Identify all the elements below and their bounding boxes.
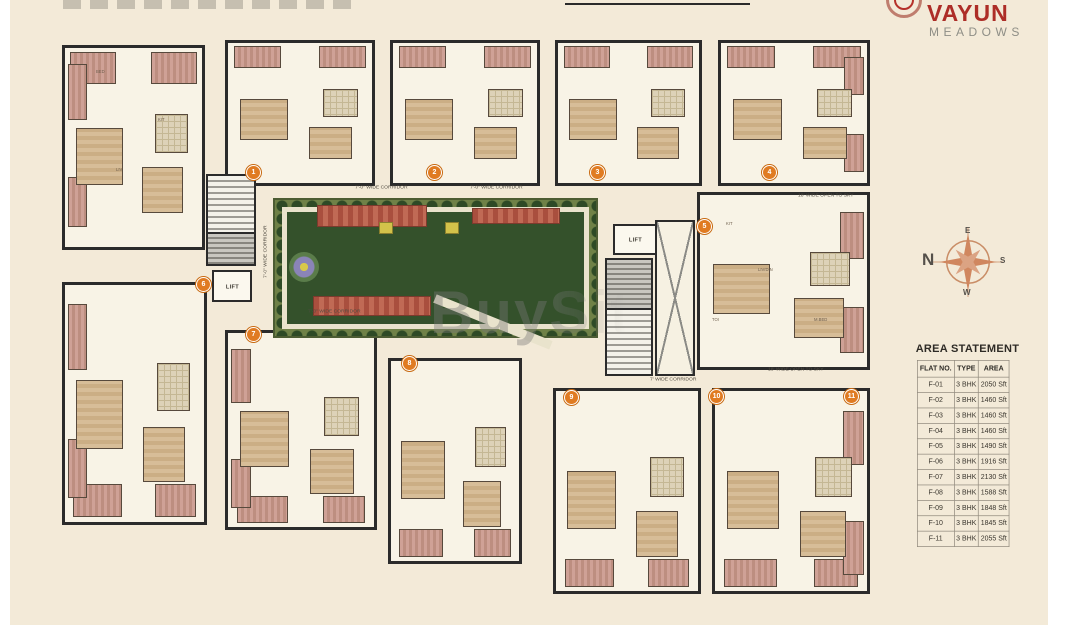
area-statement-title: AREA STATEMENT xyxy=(905,343,1030,355)
area-cell: F-04 xyxy=(917,423,954,438)
area-cell: 1490 Sft xyxy=(978,439,1009,454)
room-label-mbed-r: M.BED xyxy=(814,318,827,322)
unit-block-bottom-1 xyxy=(225,330,377,530)
area-cell: F-07 xyxy=(917,470,954,485)
cut-wall-line xyxy=(565,3,750,5)
balcony-strip xyxy=(155,484,195,517)
room-patch xyxy=(637,127,679,159)
unit-badge: 8 xyxy=(402,356,417,371)
room-patch xyxy=(76,128,123,186)
area-cell: 1848 Sft xyxy=(978,500,1009,515)
room-patch xyxy=(488,89,523,117)
area-cell: 3 BHK xyxy=(954,454,978,469)
staircase-left-landing xyxy=(206,232,256,266)
room-patch xyxy=(405,99,454,140)
staircase-left xyxy=(206,174,256,234)
compass-west-label: W xyxy=(963,288,971,297)
garden-feature-yellow-1 xyxy=(379,222,393,234)
balcony-strip xyxy=(724,559,777,587)
room-patch xyxy=(142,167,183,213)
lift-center: LIFT xyxy=(613,224,657,255)
area-cell: 1460 Sft xyxy=(978,408,1009,423)
garden-patio-top xyxy=(317,205,427,227)
balcony-strip xyxy=(323,496,365,523)
room-label-bed-a: BED xyxy=(96,70,105,74)
area-cell: 3 BHK xyxy=(954,531,978,546)
room-patch xyxy=(651,89,685,117)
room-label-liv-r: LIV/DIN xyxy=(758,268,773,272)
room-patch xyxy=(310,449,354,494)
room-patch xyxy=(157,363,190,410)
area-cell: F-06 xyxy=(917,454,954,469)
room-patch xyxy=(636,511,679,557)
balcony-strip xyxy=(564,46,611,68)
open-to-sky-label-1: 18' WIDE OPEN TO SKY xyxy=(798,192,854,198)
area-cell: F-08 xyxy=(917,485,954,500)
unit-block-bottom-3 xyxy=(553,388,701,594)
area-row: F-013 BHK2050 Sft xyxy=(917,377,1009,392)
room-label-kit-r: KIT xyxy=(726,222,733,226)
corridor-label-3: 7'-0" WIDE CORRIDOR xyxy=(308,308,361,314)
unit-block-bottom-2 xyxy=(388,358,522,564)
room-patch xyxy=(474,127,517,159)
unit-badge: 5 xyxy=(697,219,712,234)
room-patch xyxy=(817,89,852,117)
corridor-label-2: 7'-0" WIDE CORRIDOR xyxy=(470,184,523,190)
area-cell: F-01 xyxy=(917,377,954,392)
room-patch xyxy=(309,127,352,159)
area-cell: 1460 Sft xyxy=(978,423,1009,438)
area-cell: F-05 xyxy=(917,439,954,454)
area-statement-table: FLAT NO.TYPEAREA F-013 BHK2050 SftF-023 … xyxy=(917,360,1009,547)
room-patch xyxy=(810,252,850,286)
area-cell: 3 BHK xyxy=(954,485,978,500)
unit-block-top-right xyxy=(718,40,870,186)
unit-block-top-2 xyxy=(225,40,375,186)
balcony-strip xyxy=(231,349,251,403)
room-patch xyxy=(76,380,123,449)
corridor-label-4: 7' WIDE CORRIDOR xyxy=(650,376,696,382)
area-cell: 1588 Sft xyxy=(978,485,1009,500)
area-col-header: AREA xyxy=(978,360,1009,377)
balcony-strip xyxy=(399,529,444,557)
balcony-strip xyxy=(474,529,511,557)
room-patch xyxy=(727,471,779,529)
garden-feature-yellow-2 xyxy=(445,222,459,234)
room-patch xyxy=(815,457,851,497)
unit-badge: 1 xyxy=(246,165,261,180)
area-cell: F-11 xyxy=(917,531,954,546)
area-cell: F-09 xyxy=(917,500,954,515)
balcony-strip xyxy=(840,307,863,353)
area-cell: F-02 xyxy=(917,393,954,408)
room-label-toi-r: TOI xyxy=(712,318,719,322)
area-cell: 3 BHK xyxy=(954,470,978,485)
room-patch xyxy=(463,481,501,527)
unit-badge: 11 xyxy=(844,389,859,404)
room-patch xyxy=(800,511,846,557)
unit-block-top-3 xyxy=(390,40,540,186)
area-cell: 2130 Sft xyxy=(978,470,1009,485)
unit-badge: 10 xyxy=(709,389,724,404)
area-cell: 1916 Sft xyxy=(978,454,1009,469)
open-to-sky-label-2: 18' WIDE OPEN TO SKY xyxy=(768,366,824,372)
area-cell: 3 BHK xyxy=(954,408,978,423)
room-patch xyxy=(650,457,684,497)
balcony-strip xyxy=(565,559,615,587)
balcony-strip xyxy=(234,46,282,68)
room-patch xyxy=(240,411,290,467)
balcony-strip xyxy=(648,559,689,587)
corridor-label-1: 7'-0" WIDE CORRIDOR xyxy=(355,184,408,190)
area-col-header: FLAT NO. xyxy=(917,360,954,377)
watermark-text: BuySit xyxy=(430,278,632,347)
room-patch xyxy=(567,471,615,529)
garden-patio-right xyxy=(472,208,560,224)
area-cell: F-10 xyxy=(917,516,954,531)
corridor-label-vertical: 7'-0" WIDE CORRIDOR xyxy=(262,225,268,278)
area-cell: 1845 Sft xyxy=(978,516,1009,531)
compass-east-label: E xyxy=(965,226,970,235)
unit-block-left-lower xyxy=(62,282,207,525)
balcony-strip xyxy=(151,52,196,84)
room-patch xyxy=(803,127,847,159)
area-cell: F-03 xyxy=(917,408,954,423)
room-patch xyxy=(733,99,783,140)
unit-badge: 4 xyxy=(762,165,777,180)
area-row: F-093 BHK1848 Sft xyxy=(917,500,1009,515)
area-cell: 1460 Sft xyxy=(978,393,1009,408)
area-row: F-113 BHK2055 Sft xyxy=(917,531,1009,546)
room-patch xyxy=(323,89,358,117)
room-patch xyxy=(240,99,289,140)
room-patch xyxy=(475,427,506,467)
area-cell: 2055 Sft xyxy=(978,531,1009,546)
room-patch xyxy=(324,397,359,436)
area-row: F-063 BHK1916 Sft xyxy=(917,454,1009,469)
unit-badge: 9 xyxy=(564,390,579,405)
balcony-strip xyxy=(843,521,864,575)
area-row: F-023 BHK1460 Sft xyxy=(917,393,1009,408)
brand-name: VAYUN xyxy=(927,0,1009,27)
area-cell: 3 BHK xyxy=(954,439,978,454)
balcony-strip xyxy=(399,46,447,68)
area-row: F-053 BHK1490 Sft xyxy=(917,439,1009,454)
area-row: F-033 BHK1460 Sft xyxy=(917,408,1009,423)
area-statement-panel: FLAT NO.TYPEAREA F-013 BHK2050 SftF-023 … xyxy=(917,360,1009,547)
brand-tagline: MEADOWS xyxy=(929,25,1024,39)
area-header-row: FLAT NO.TYPEAREA xyxy=(917,360,1009,377)
compass-north-label: N xyxy=(922,250,934,270)
unit-badge: 6 xyxy=(196,277,211,292)
area-cell: 3 BHK xyxy=(954,516,978,531)
cropped-title-remnant xyxy=(63,0,359,9)
area-row: F-083 BHK1588 Sft xyxy=(917,485,1009,500)
unit-badge: 3 xyxy=(590,165,605,180)
area-cell: 3 BHK xyxy=(954,393,978,408)
lift-left-label: LIFT xyxy=(225,283,238,289)
balcony-strip xyxy=(647,46,694,68)
garden-fountain xyxy=(289,252,319,282)
area-row: F-073 BHK2130 Sft xyxy=(917,470,1009,485)
balcony-strip xyxy=(727,46,775,68)
area-cell: 3 BHK xyxy=(954,377,978,392)
balcony-strip xyxy=(319,46,367,68)
balcony-strip xyxy=(844,134,864,172)
lift-left: LIFT xyxy=(212,270,252,302)
unit-block-top-4 xyxy=(555,40,702,186)
area-row: F-043 BHK1460 Sft xyxy=(917,423,1009,438)
unit-block-bottom-right xyxy=(712,388,870,594)
room-patch xyxy=(569,99,617,140)
unit-block-right-large xyxy=(697,192,870,370)
balcony-strip xyxy=(68,64,87,120)
room-label-liv-a: LIV xyxy=(116,168,122,172)
area-row: F-103 BHK1845 Sft xyxy=(917,516,1009,531)
area-col-header: TYPE xyxy=(954,360,978,377)
balcony-strip xyxy=(484,46,532,68)
balcony-strip xyxy=(68,304,87,370)
area-cell: 3 BHK xyxy=(954,423,978,438)
room-label-kit-a: KIT xyxy=(158,118,165,122)
area-cell: 2050 Sft xyxy=(978,377,1009,392)
room-patch xyxy=(143,427,185,482)
open-shaft xyxy=(655,220,695,376)
unit-badge: 7 xyxy=(246,327,261,342)
floorplan-poster: LIFT LIFT 7'-0" WIDE CORRIDOR 7'-0" WIDE… xyxy=(0,0,1068,625)
compass-south-label: S xyxy=(1000,256,1005,265)
lift-center-label: LIFT xyxy=(628,236,641,242)
unit-badge: 2 xyxy=(427,165,442,180)
area-cell: 3 BHK xyxy=(954,500,978,515)
unit-block-top-left xyxy=(62,45,205,250)
room-patch xyxy=(401,441,445,499)
